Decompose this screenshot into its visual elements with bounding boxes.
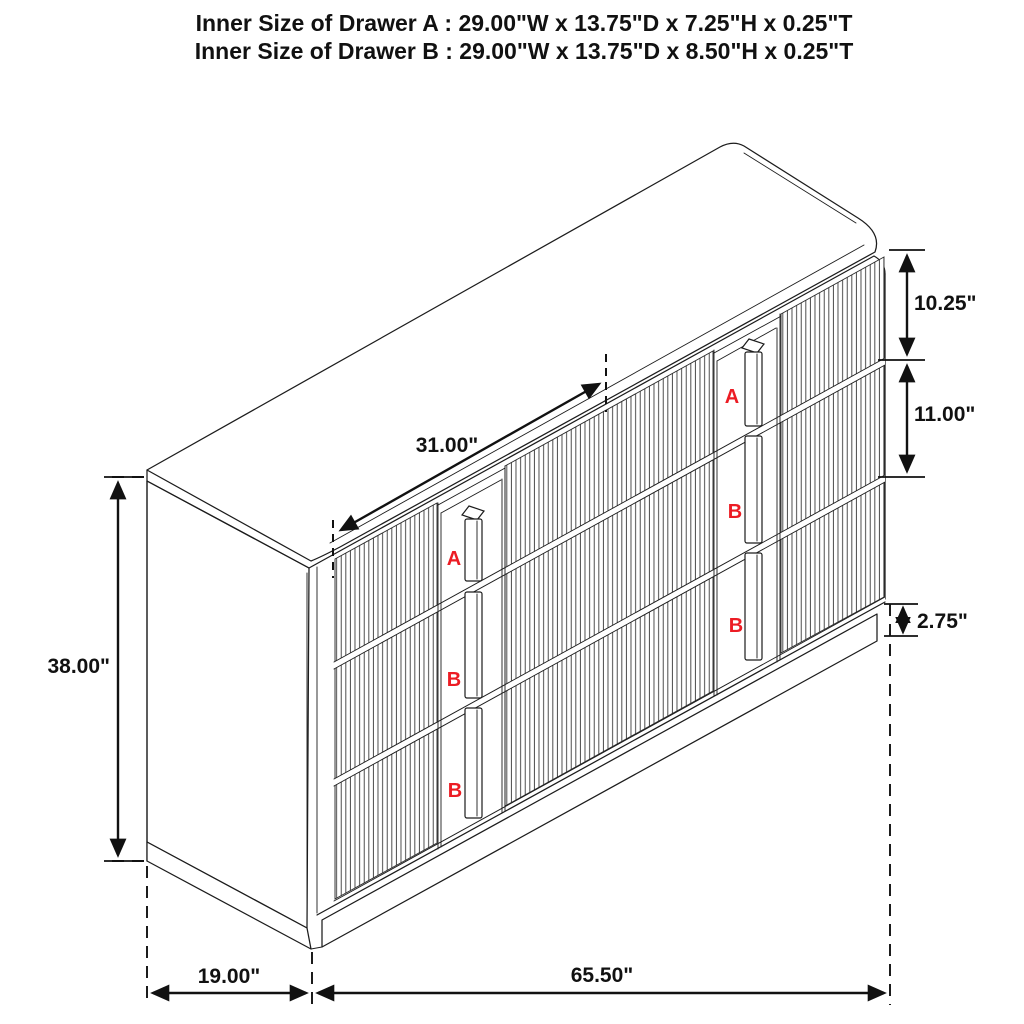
- drawer-letter-left-top: A: [447, 548, 461, 570]
- handle-left-segment-b2: [465, 708, 482, 818]
- title-line-1: Inner Size of Drawer A : 29.00"W x 13.75…: [196, 10, 853, 36]
- handle-right-segment-a: [745, 352, 762, 426]
- dim-label-base-height: 2.75": [917, 610, 968, 633]
- handle-right-segment-b2: [745, 553, 762, 660]
- base-corner-join: [311, 947, 322, 949]
- title-line-2: Inner Size of Drawer B : 29.00"W x 13.75…: [195, 38, 854, 64]
- handle-right-segment-b1: [745, 436, 762, 543]
- drawer-letter-right-middle: B: [728, 501, 742, 523]
- dimension-top-drawer: 10.25": [878, 250, 977, 360]
- drawer-letter-left-middle: B: [447, 669, 461, 691]
- dresser-diagram-canvas: A B B A B B 38.00" 31.00": [0, 0, 1024, 1024]
- dim-label-middle-drawer: 11.00": [914, 403, 975, 426]
- handle-left-segment-a: [465, 519, 482, 581]
- dresser-drawing: A B B A B B: [147, 143, 885, 949]
- handle-left: [462, 506, 484, 818]
- dim-label-overall-height: 38.00": [47, 655, 110, 678]
- dim-label-top-drawer: 10.25": [914, 292, 977, 315]
- dim-label-front-width: 65.50": [571, 964, 634, 987]
- drawer-letter-right-bottom: B: [729, 615, 743, 637]
- drawer-letter-right-top: A: [725, 386, 739, 408]
- dim-label-side-depth: 19.00": [198, 965, 261, 988]
- dim-label-top-diagonal: 31.00": [416, 434, 479, 457]
- furniture-dimension-diagram: A B B A B B 38.00" 31.00": [0, 0, 1024, 1024]
- fluted-panel-left: [335, 503, 437, 899]
- drawer-letter-left-bottom: B: [448, 780, 462, 802]
- diagram-title: Inner Size of Drawer A : 29.00"W x 13.75…: [195, 10, 854, 64]
- handle-left-segment-b1: [465, 592, 482, 698]
- dimension-middle-drawer: 11.00": [878, 366, 975, 477]
- handle-right: [742, 339, 764, 660]
- dimension-base-height: 2.75": [884, 604, 968, 636]
- fluted-panel-right: [781, 257, 884, 653]
- dimension-overall-height: 38.00": [47, 477, 152, 861]
